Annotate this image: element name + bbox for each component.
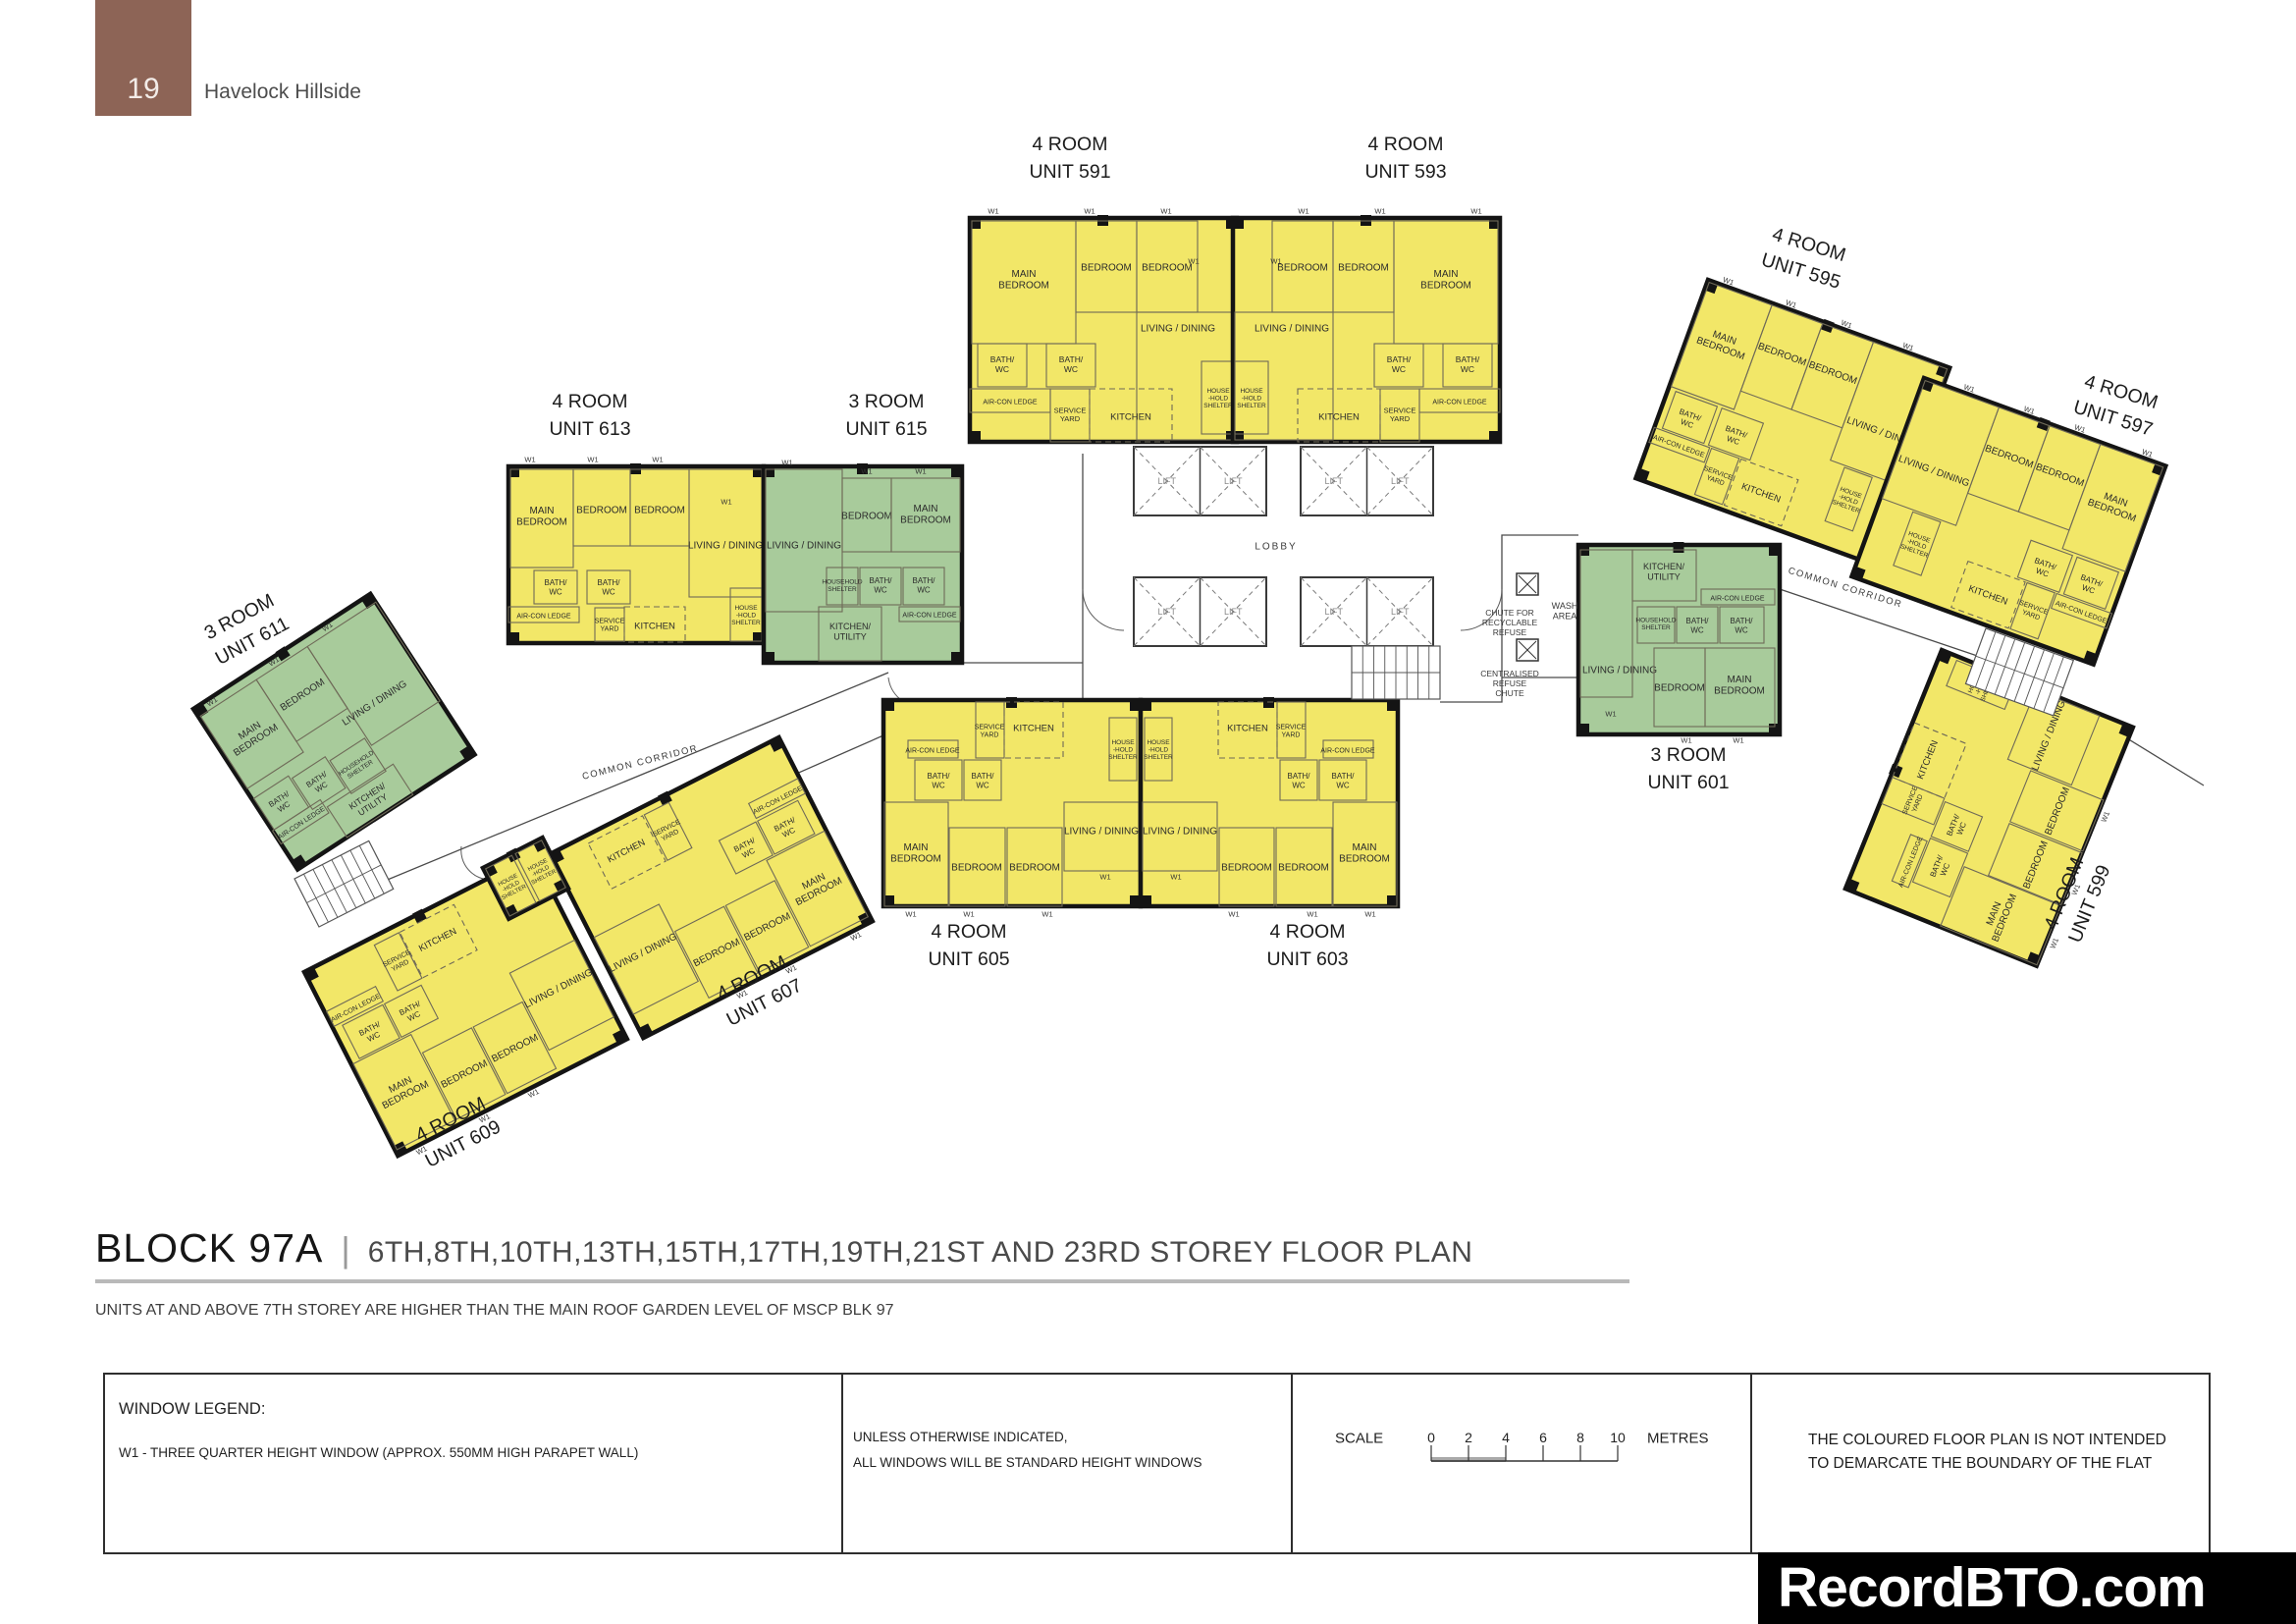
unit-591-room xyxy=(1050,389,1090,442)
unit-597-room xyxy=(2052,593,2112,628)
unit-601-room xyxy=(1701,589,1775,605)
svg-text:W1: W1 xyxy=(526,1087,540,1100)
svg-text:LOBBY: LOBBY xyxy=(1255,542,1297,553)
unit-title-unit-593: 4 ROOMUNIT 593 xyxy=(1364,134,1446,183)
unit-605-room xyxy=(964,760,1001,800)
lift-box-2: LIFTLIFT xyxy=(1134,577,1266,646)
unit-title-unit-611: 3 ROOMUNIT 611 xyxy=(199,588,294,669)
unit-597-room xyxy=(2062,445,2163,571)
svg-text:LIFT: LIFT xyxy=(1157,607,1176,617)
svg-text:KITCHEN: KITCHEN xyxy=(1227,723,1268,733)
svg-text:AIR-CON LEDGE: AIR-CON LEDGE xyxy=(330,993,382,1023)
svg-text:W1: W1 xyxy=(1785,298,1798,309)
svg-text:KITCHEN/UTILITY: KITCHEN/UTILITY xyxy=(1643,562,1685,581)
wall-column xyxy=(1889,764,1902,778)
svg-text:BATH/WC: BATH/WC xyxy=(1731,617,1754,634)
unit-615-room xyxy=(827,568,858,605)
svg-text:MAINBEDROOM: MAINBEDROOM xyxy=(1695,325,1750,363)
unit-613-room xyxy=(573,469,630,546)
block-title: BLOCK 97A xyxy=(95,1225,323,1272)
svg-text:W1: W1 xyxy=(2048,937,2060,950)
svg-text:MAINBEDROOM: MAINBEDROOM xyxy=(376,1069,431,1112)
svg-text:LIFT: LIFT xyxy=(1324,607,1343,617)
unit-607-room xyxy=(594,904,698,1014)
unit-595-room xyxy=(1708,408,1763,460)
wall-column xyxy=(1867,553,1881,567)
unit-613-room xyxy=(630,469,689,546)
svg-text:W1: W1 xyxy=(2100,810,2112,824)
svg-text:BEDROOM: BEDROOM xyxy=(1142,263,1193,274)
wall-column xyxy=(753,632,764,643)
svg-text:W1: W1 xyxy=(1840,318,1853,330)
unit-title-unit-599: 4 ROOMUNIT 599 xyxy=(2039,851,2114,946)
svg-text:MAINBEDROOM: MAINBEDROOM xyxy=(789,866,844,909)
storey-note: UNITS AT AND ABOVE 7TH STOREY ARE HIGHER… xyxy=(95,1302,894,1320)
svg-text:KITCHEN: KITCHEN xyxy=(606,838,647,866)
svg-text:BEDROOM: BEDROOM xyxy=(634,506,685,516)
unit-609-room xyxy=(374,933,422,991)
legend-divider-2 xyxy=(1291,1375,1293,1552)
unit-609-room xyxy=(385,985,439,1037)
svg-text:HOUSEHOLDSHELTER: HOUSEHOLDSHELTER xyxy=(1635,618,1676,631)
wall-column xyxy=(883,895,894,906)
unit-title-unit-591: 4 ROOMUNIT 591 xyxy=(1029,134,1110,183)
wall-column xyxy=(753,466,764,477)
svg-text:LIFT: LIFT xyxy=(1391,476,1410,486)
unit-599-room xyxy=(1947,661,2015,710)
project-name: Havelock Hillside xyxy=(204,81,361,104)
svg-text:LIVING / DINING: LIVING / DINING xyxy=(341,678,409,729)
disclaimer-line1: THE COLOURED FLOOR PLAN IS NOT INTENDED xyxy=(1808,1432,2166,1449)
unit-599-room xyxy=(2007,690,2099,785)
wall-column xyxy=(764,652,774,663)
unit-599-room xyxy=(1913,839,1968,897)
legend-table: WINDOW LEGEND: W1 - THREE QUARTER HEIGHT… xyxy=(103,1373,2211,1554)
svg-text:W1: W1 xyxy=(1470,207,1481,216)
svg-text:BEDROOM: BEDROOM xyxy=(1278,863,1329,874)
lift-box-0: LIFTLIFT xyxy=(1134,447,1266,515)
unit-595-room xyxy=(1791,324,1873,428)
wall-column xyxy=(508,632,519,643)
wall-column xyxy=(1233,218,1244,229)
unit-609-room xyxy=(343,1004,400,1058)
svg-text:AIR-CON LEDGE: AIR-CON LEDGE xyxy=(2055,600,2109,625)
unit-597-room xyxy=(2017,540,2072,592)
unit-595-room xyxy=(1662,392,1717,444)
unit-605-room xyxy=(976,702,1004,758)
wall-column xyxy=(1387,895,1398,906)
door-arc-0 xyxy=(1083,589,1124,630)
unit-597-room xyxy=(1968,407,2050,512)
wall-column xyxy=(193,703,208,718)
svg-text:W1: W1 xyxy=(1605,710,1616,719)
svg-text:4 ROOMUNIT 597: 4 ROOMUNIT 597 xyxy=(2071,370,2163,441)
wall-column xyxy=(412,909,427,924)
svg-text:LIVING / DINING: LIVING / DINING xyxy=(1255,324,1329,335)
unit-601-room xyxy=(1637,607,1675,643)
svg-text:W1: W1 xyxy=(915,467,926,476)
svg-text:BATH/WC: BATH/WC xyxy=(870,576,893,594)
wall-column xyxy=(1769,724,1780,734)
svg-text:4 ROOMUNIT 593: 4 ROOMUNIT 593 xyxy=(1364,134,1446,183)
svg-text:HOUSE-HOLDSHELTER: HOUSE-HOLDSHELTER xyxy=(1203,388,1233,409)
svg-text:BEDROOM: BEDROOM xyxy=(1009,863,1060,874)
watermark: RecordBTO.com xyxy=(1758,1552,2296,1624)
svg-text:AIR-CON LEDGE: AIR-CON LEDGE xyxy=(1710,595,1765,602)
unit-title-unit-603: 4 ROOMUNIT 603 xyxy=(1266,921,1348,970)
svg-text:BEDROOM: BEDROOM xyxy=(2021,839,2051,891)
refuse-chute-icon-1 xyxy=(1517,639,1538,661)
svg-text:BATH/WC: BATH/WC xyxy=(304,770,334,797)
unit-613-room xyxy=(508,607,579,623)
svg-text:MAINBEDROOM: MAINBEDROOM xyxy=(226,713,281,759)
unit-591-room xyxy=(978,344,1027,387)
unit-613-room xyxy=(534,570,577,604)
svg-text:SERVICEYARD: SERVICEYARD xyxy=(2015,600,2049,624)
unit-611-room xyxy=(200,679,303,788)
unit-591-room xyxy=(970,389,1050,412)
svg-text:BATH/WC: BATH/WC xyxy=(357,1019,386,1046)
wall-column xyxy=(524,855,539,870)
svg-text:W1: W1 xyxy=(963,910,974,919)
wall-column xyxy=(459,745,474,760)
wall-column xyxy=(638,1023,653,1038)
svg-text:4 ROOMUNIT 605: 4 ROOMUNIT 605 xyxy=(928,921,1009,970)
unit-613-room xyxy=(730,588,762,641)
unit-599-room xyxy=(1941,867,2061,965)
unit-shelters-609-607-room xyxy=(486,855,536,916)
svg-text:COMMON CORRIDOR: COMMON CORRIDOR xyxy=(581,743,699,783)
svg-text:W1: W1 xyxy=(524,456,535,464)
svg-text:W1: W1 xyxy=(1160,207,1171,216)
wall-column xyxy=(1233,431,1244,442)
unit-597-room xyxy=(2063,557,2118,609)
svg-text:BEDROOM: BEDROOM xyxy=(1338,263,1389,274)
unit-613-room xyxy=(510,469,573,568)
svg-text:MAINBEDROOM: MAINBEDROOM xyxy=(1714,675,1765,697)
svg-text:SERVICEYARD: SERVICEYARD xyxy=(652,819,685,845)
svg-text:W1: W1 xyxy=(1681,736,1691,745)
svg-text:W1: W1 xyxy=(1228,910,1239,919)
page: { "header": { "page_number": "19", "proj… xyxy=(0,0,2296,1624)
svg-text:W1: W1 xyxy=(781,459,792,467)
svg-text:HOUSE-HOLDSHELTER: HOUSE-HOLDSHELTER xyxy=(524,856,558,886)
svg-text:W1: W1 xyxy=(2022,405,2036,416)
unit-595-room xyxy=(1649,427,1710,462)
svg-text:MAINBEDROOM: MAINBEDROOM xyxy=(998,269,1049,292)
svg-text:W1: W1 xyxy=(861,467,872,476)
unit-601-room xyxy=(1632,550,1696,601)
svg-text:BEDROOM: BEDROOM xyxy=(440,1058,490,1091)
svg-text:BEDROOM: BEDROOM xyxy=(1654,683,1705,694)
svg-text:W1: W1 xyxy=(205,695,219,709)
svg-text:HOUSEHOLDSHELTER: HOUSEHOLDSHELTER xyxy=(822,579,862,593)
unit-605-room xyxy=(949,828,1005,906)
svg-text:AIR-CON LEDGE: AIR-CON LEDGE xyxy=(905,747,960,754)
unit-609-room xyxy=(509,940,614,1050)
window-legend-item: W1 - THREE QUARTER HEIGHT WINDOW (APPROX… xyxy=(119,1445,638,1460)
wall-column xyxy=(304,967,319,982)
unit-591-room xyxy=(972,221,1076,344)
wall-column xyxy=(858,911,873,926)
svg-text:LIFT: LIFT xyxy=(1391,607,1410,617)
wall-column xyxy=(1851,567,1865,580)
svg-text:4 ROOMUNIT 607: 4 ROOMUNIT 607 xyxy=(711,950,806,1031)
unit-609-room xyxy=(473,1002,556,1094)
svg-text:4 ROOMUNIT 609: 4 ROOMUNIT 609 xyxy=(409,1092,505,1172)
svg-text:AIR-CON LEDGE: AIR-CON LEDGE xyxy=(516,613,571,620)
svg-text:W1: W1 xyxy=(1099,873,1110,882)
svg-text:HOUSEHOLDSHELTER: HOUSEHOLDSHELTER xyxy=(338,749,380,784)
wall-column xyxy=(1006,697,1017,708)
unit-601-room xyxy=(1677,607,1718,643)
unit-605-room xyxy=(908,740,958,758)
svg-text:CHUTE FORRECYCLABLEREFUSE: CHUTE FORRECYCLABLEREFUSE xyxy=(1482,608,1538,637)
svg-text:BATH/WC: BATH/WC xyxy=(972,772,995,789)
svg-text:W1: W1 xyxy=(2070,883,2083,896)
wall-column xyxy=(393,1141,407,1156)
svg-text:BEDROOM: BEDROOM xyxy=(1756,341,1807,368)
unit-601-room xyxy=(1654,648,1705,727)
title-row: BLOCK 97A | 6TH,8TH,10TH,13TH,15TH,17TH,… xyxy=(95,1225,1472,1272)
wall-column xyxy=(1226,218,1237,229)
svg-text:HOUSE-HOLDSHELTER: HOUSE-HOLDSHELTER xyxy=(1237,388,1266,409)
unit-615: LIVING / DININGBEDROOMMAINBEDROOMHOUSEHO… xyxy=(764,459,962,663)
svg-text:AIR-CON LEDGE: AIR-CON LEDGE xyxy=(1897,836,1924,889)
wall-column xyxy=(1141,895,1151,906)
wall-column xyxy=(504,904,518,919)
svg-text:BATH/WC: BATH/WC xyxy=(1929,853,1954,882)
svg-text:BATH/WC: BATH/WC xyxy=(2030,556,2058,580)
svg-text:HOUSE-HOLDSHELTER: HOUSE-HOLDSHELTER xyxy=(1144,739,1173,761)
unit-595-room xyxy=(1725,460,1798,526)
unit-599: KITCHENSERVICEYARDAIR-CON LEDGEBATH/WCBA… xyxy=(1842,649,2144,970)
unit-593-room xyxy=(1298,389,1380,442)
svg-text:MAINBEDROOM: MAINBEDROOM xyxy=(1339,842,1390,865)
unit-613: MAINBEDROOMBEDROOMBEDROOMLIVING / DINING… xyxy=(508,456,764,643)
unit-611-room xyxy=(330,738,386,793)
svg-text:3 ROOMUNIT 615: 3 ROOMUNIT 615 xyxy=(845,391,927,440)
refuse-chute-icon-0 xyxy=(1517,573,1538,595)
lift-box-3: LIFTLIFT xyxy=(1301,577,1433,646)
svg-text:BEDROOM: BEDROOM xyxy=(2034,461,2085,489)
staircase-2 xyxy=(1965,628,2073,716)
unit-593-room xyxy=(1374,344,1423,387)
wall-column xyxy=(550,849,564,864)
svg-text:BATH/WC: BATH/WC xyxy=(928,772,951,789)
svg-text:BATH/WC: BATH/WC xyxy=(1332,772,1356,789)
wall-column xyxy=(2119,724,2133,737)
svg-text:BEDROOM: BEDROOM xyxy=(692,937,742,969)
svg-text:BATH/WC: BATH/WC xyxy=(732,836,761,862)
wall-column xyxy=(1387,700,1398,711)
windows-note-line1: UNLESS OTHERWISE INDICATED, xyxy=(853,1430,1068,1444)
staircase-1 xyxy=(294,840,394,927)
wall-column xyxy=(1821,319,1835,333)
wall-column xyxy=(1635,468,1649,482)
unit-591-room xyxy=(1090,389,1172,442)
svg-text:CENTRALISEDREFUSECHUTE: CENTRALISEDREFUSECHUTE xyxy=(1480,669,1539,698)
svg-text:BATH/WC: BATH/WC xyxy=(1288,772,1311,789)
svg-text:BATH/WC: BATH/WC xyxy=(1675,407,1703,432)
unit-shelters-609-607-room xyxy=(515,840,565,901)
svg-text:W1: W1 xyxy=(988,207,998,216)
svg-text:BATH/WC: BATH/WC xyxy=(398,999,426,1025)
unit-591-room xyxy=(1201,361,1235,434)
unit-615-room xyxy=(819,607,881,661)
svg-text:LIVING / DINING: LIVING / DINING xyxy=(1896,454,1971,489)
unit-593-room xyxy=(1333,221,1394,312)
wall-column xyxy=(2152,462,2165,476)
unit-611-room xyxy=(256,646,347,741)
unit-607-room xyxy=(758,800,815,854)
unit-605-room xyxy=(915,760,962,800)
unit-607: LIVING / DININGKITCHENSERVICEYARDAIR-CON… xyxy=(549,734,878,1047)
wall-column xyxy=(1578,545,1589,556)
unit-601: KITCHEN/UTILITYAIR-CON LEDGEHOUSEHOLDSHE… xyxy=(1578,542,1780,745)
page-number: 19 xyxy=(95,73,191,106)
unit-603-room xyxy=(1323,740,1373,758)
disclaimer-line2: TO DEMARCATE THE BOUNDARY OF THE FLAT xyxy=(1808,1455,2152,1473)
svg-text:MAINBEDROOM: MAINBEDROOM xyxy=(516,506,567,528)
wall-column xyxy=(1936,364,1949,378)
unit-601-room xyxy=(1705,648,1775,727)
svg-text:BATH/WC: BATH/WC xyxy=(598,578,621,596)
svg-text:KITCHEN: KITCHEN xyxy=(1110,411,1151,422)
svg-text:SERVICEYARD: SERVICEYARD xyxy=(1901,785,1927,819)
svg-text:SERVICEYARD: SERVICEYARD xyxy=(1276,724,1307,738)
unit-595-room xyxy=(1831,342,1948,487)
svg-text:KITCHEN: KITCHEN xyxy=(1739,481,1782,506)
svg-text:WASHAREA: WASHAREA xyxy=(1552,601,1578,621)
unit-597-room xyxy=(1882,381,1999,526)
svg-text:W1: W1 xyxy=(414,1144,428,1157)
unit-615-room xyxy=(766,469,842,612)
wall-column xyxy=(1704,280,1718,294)
wall-column xyxy=(275,646,290,661)
svg-text:BATH/WC: BATH/WC xyxy=(1387,354,1412,374)
svg-text:W1: W1 xyxy=(652,456,663,464)
unit-609-room xyxy=(327,987,384,1027)
unit-611-room xyxy=(273,800,329,844)
svg-text:AIR-CON LEDGE: AIR-CON LEDGE xyxy=(277,806,326,841)
svg-text:BATH/WC: BATH/WC xyxy=(1059,354,1084,374)
unit-605-room xyxy=(1064,802,1139,871)
unit-599-room xyxy=(1893,723,1966,798)
svg-text:BEDROOM: BEDROOM xyxy=(2043,785,2072,837)
unit-607-room xyxy=(675,906,758,998)
unit-title-unit-607: 4 ROOMUNIT 607 xyxy=(711,950,806,1031)
wall-column xyxy=(1674,542,1684,553)
svg-text:BATH/WC: BATH/WC xyxy=(990,354,1015,374)
unit-603-room xyxy=(1276,828,1332,906)
svg-text:3 ROOMUNIT 601: 3 ROOMUNIT 601 xyxy=(1647,744,1729,793)
unit-title-unit-601: 3 ROOMUNIT 601 xyxy=(1647,744,1729,793)
unit-shelters-609-607: HOUSE-HOLDSHELTERHOUSE-HOLDSHELTER xyxy=(482,835,568,918)
unit-603-room xyxy=(1219,828,1274,906)
svg-text:BATH/WC: BATH/WC xyxy=(1456,354,1480,374)
unit-601-room xyxy=(1580,550,1632,697)
unit-615-room xyxy=(842,478,891,552)
corridor-line-0 xyxy=(1083,454,1352,702)
unit-593-room xyxy=(1235,312,1333,440)
unit-603: KITCHENSERVICEYARDAIR-CON LEDGEBATH/WCBA… xyxy=(1141,697,1398,919)
unit-613-room xyxy=(689,469,762,597)
wall-column xyxy=(970,218,981,229)
svg-text:LIVING / DINING: LIVING / DINING xyxy=(2030,699,2068,773)
wall-column xyxy=(1361,215,1371,226)
svg-text:BATH/WC: BATH/WC xyxy=(267,789,296,817)
wall-column xyxy=(1845,879,1859,893)
unit-609-room xyxy=(422,1028,505,1119)
svg-text:LIVING / DINING: LIVING / DINING xyxy=(1141,324,1215,335)
svg-text:MAINBEDROOM: MAINBEDROOM xyxy=(1420,269,1471,292)
wall-column xyxy=(483,863,498,878)
svg-text:W1: W1 xyxy=(721,498,731,507)
wall-column xyxy=(1578,724,1589,734)
svg-text:BATH/WC: BATH/WC xyxy=(1945,812,1970,840)
lift-box-1: LIFTLIFT xyxy=(1301,447,1433,515)
svg-text:BATH/WC: BATH/WC xyxy=(2076,572,2105,597)
svg-text:BATH/WC: BATH/WC xyxy=(1721,424,1749,449)
wall-column xyxy=(2083,651,2097,665)
unit-593-room xyxy=(1394,221,1498,344)
wall-column xyxy=(508,466,519,477)
unit-599-room xyxy=(1931,802,1982,852)
wall-column xyxy=(1489,431,1500,442)
wall-column xyxy=(507,848,521,863)
svg-text:W1: W1 xyxy=(905,910,916,919)
svg-text:4 ROOMUNIT 591: 4 ROOMUNIT 591 xyxy=(1029,134,1110,183)
svg-text:W1: W1 xyxy=(2141,447,2155,459)
wall-column xyxy=(951,652,962,663)
svg-text:BEDROOM: BEDROOM xyxy=(742,911,792,944)
svg-text:W1: W1 xyxy=(1188,257,1199,266)
unit-593-room xyxy=(1380,389,1419,442)
wall-column xyxy=(361,594,376,609)
corridor-line-1 xyxy=(1440,535,1578,702)
unit-603-room xyxy=(1218,702,1277,758)
svg-text:4 ROOMUNIT 603: 4 ROOMUNIT 603 xyxy=(1266,921,1348,970)
wall-column xyxy=(1097,215,1108,226)
unit-615-room xyxy=(860,568,901,605)
svg-text:KITCHEN: KITCHEN xyxy=(1318,411,1360,422)
wall-column xyxy=(1263,697,1274,708)
svg-text:AIR-CON LEDGE: AIR-CON LEDGE xyxy=(902,612,957,619)
unit-607-room xyxy=(725,881,808,972)
wall-column xyxy=(857,463,868,474)
svg-text:LIVING / DINING: LIVING / DINING xyxy=(1582,666,1657,677)
unit-611-room xyxy=(307,602,440,745)
unit-591-room xyxy=(1137,312,1235,440)
unit-601-room xyxy=(1720,607,1764,643)
svg-text:BEDROOM: BEDROOM xyxy=(1277,263,1328,274)
svg-text:SERVICEYARD: SERVICEYARD xyxy=(975,724,1005,738)
unit-607-room xyxy=(644,802,692,860)
svg-text:4 ROOMUNIT 595: 4 ROOMUNIT 595 xyxy=(1759,223,1851,294)
svg-text:BATH/WC: BATH/WC xyxy=(913,576,936,594)
unit-591-room xyxy=(1076,221,1137,312)
svg-text:SERVICEYARD: SERVICEYARD xyxy=(1054,406,1087,423)
legend-divider-3 xyxy=(1750,1375,1752,1552)
unit-591: MAINBEDROOMBEDROOMBEDROOMLIVING / DINING… xyxy=(970,207,1237,442)
svg-text:W1: W1 xyxy=(1722,275,1735,287)
svg-text:AIR-CON LEDGE: AIR-CON LEDGE xyxy=(1432,399,1487,406)
corridor-line-5 xyxy=(417,725,908,941)
unit-611-room xyxy=(327,764,412,838)
svg-text:LIVING / DINING: LIVING / DINING xyxy=(1845,415,1920,451)
svg-text:KITCHEN/UTILITY: KITCHEN/UTILITY xyxy=(829,622,872,641)
